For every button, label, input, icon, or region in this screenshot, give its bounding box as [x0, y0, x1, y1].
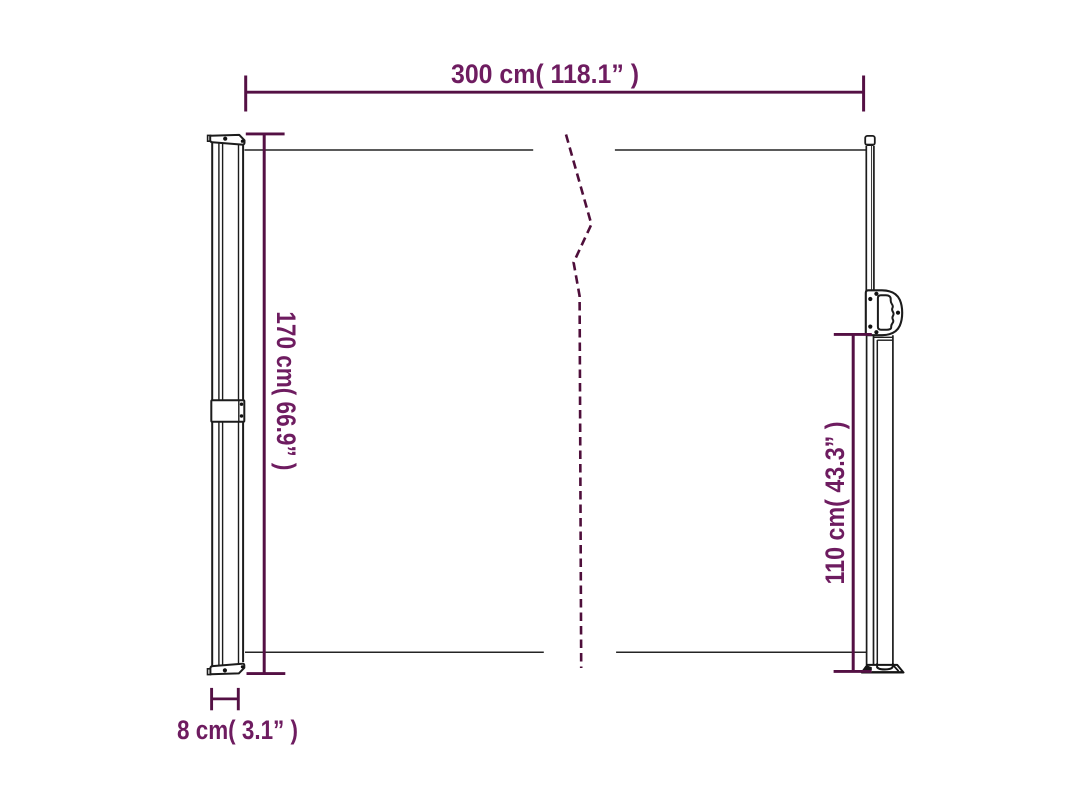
- svg-text:8 cm( 3.1” ): 8 cm( 3.1” ): [177, 715, 298, 745]
- svg-text:300 cm( 118.1” ): 300 cm( 118.1” ): [451, 59, 639, 89]
- svg-text:110 cm( 43.3” ): 110 cm( 43.3” ): [820, 422, 850, 585]
- svg-text:170 cm( 66.9” ): 170 cm( 66.9” ): [271, 311, 301, 470]
